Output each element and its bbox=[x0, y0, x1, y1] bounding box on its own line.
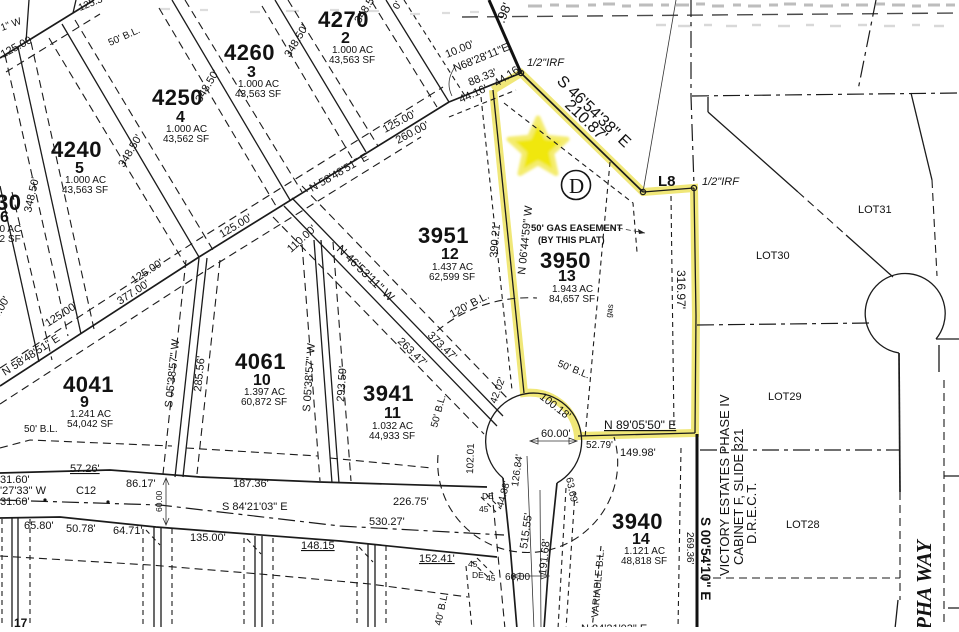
svg-text:84,657 SF: 84,657 SF bbox=[549, 294, 595, 305]
svg-text:4270: 4270 bbox=[318, 7, 369, 32]
svg-text:4240: 4240 bbox=[51, 137, 102, 162]
svg-text:50' B.L.: 50' B.L. bbox=[24, 424, 58, 435]
svg-text:50' GAS EASEMENT: 50' GAS EASEMENT bbox=[531, 223, 623, 234]
svg-text:L8: L8 bbox=[658, 173, 676, 190]
svg-text:LOT31: LOT31 bbox=[858, 204, 892, 216]
svg-text:152.41': 152.41' bbox=[419, 553, 455, 565]
svg-text:60.00: 60.00 bbox=[154, 490, 164, 512]
svg-text:LOT29: LOT29 bbox=[768, 391, 802, 403]
svg-text:187.36': 187.36' bbox=[233, 478, 269, 490]
svg-text:316.97': 316.97' bbox=[674, 270, 688, 309]
svg-text:1/2"IRF: 1/2"IRF bbox=[702, 176, 740, 188]
svg-text:31.60': 31.60' bbox=[0, 496, 30, 508]
svg-text:64.71': 64.71' bbox=[113, 525, 143, 537]
svg-text:4250: 4250 bbox=[152, 85, 203, 110]
svg-text:LOT30: LOT30 bbox=[756, 250, 790, 262]
svg-text:54,042 SF: 54,042 SF bbox=[67, 419, 113, 430]
svg-text:43,563 SF: 43,563 SF bbox=[235, 89, 281, 100]
svg-text:DE: DE bbox=[472, 570, 484, 580]
svg-text:62 SF: 62 SF bbox=[0, 234, 21, 245]
svg-text:293.59': 293.59' bbox=[335, 366, 349, 402]
svg-text:45: 45 bbox=[486, 573, 496, 583]
svg-text:1/2"IRF: 1/2"IRF bbox=[527, 57, 565, 69]
svg-text:45: 45 bbox=[468, 559, 478, 569]
svg-text:65.80': 65.80' bbox=[24, 520, 54, 532]
svg-text:VICTORY ESTATES PHASE IV: VICTORY ESTATES PHASE IV bbox=[717, 394, 732, 576]
svg-text:148.15: 148.15 bbox=[301, 540, 335, 552]
svg-text:D: D bbox=[569, 174, 584, 198]
svg-text:43,563 SF: 43,563 SF bbox=[329, 55, 375, 66]
svg-text:4260: 4260 bbox=[224, 40, 275, 65]
svg-text:4061: 4061 bbox=[235, 349, 286, 374]
svg-text:60,00: 60,00 bbox=[505, 572, 530, 583]
svg-text:60.00': 60.00' bbox=[541, 428, 571, 440]
svg-text:45: 45 bbox=[479, 504, 489, 514]
svg-text:135.00': 135.00' bbox=[190, 532, 226, 544]
svg-text:PHA WAY: PHA WAY bbox=[912, 538, 936, 627]
svg-text:C12: C12 bbox=[76, 485, 96, 497]
svg-text:226.75': 226.75' bbox=[393, 496, 429, 508]
svg-text:3941: 3941 bbox=[363, 381, 414, 406]
svg-text:52.79': 52.79' bbox=[586, 440, 613, 451]
svg-text:S 00'54'10" E: S 00'54'10" E bbox=[698, 517, 713, 600]
svg-text:149.98': 149.98' bbox=[620, 447, 656, 459]
svg-text:11: 11 bbox=[384, 405, 401, 422]
svg-text:13: 13 bbox=[558, 268, 576, 285]
svg-text:3951: 3951 bbox=[418, 223, 469, 248]
svg-text:43,562 SF: 43,562 SF bbox=[163, 134, 209, 145]
svg-text:44,933 SF: 44,933 SF bbox=[369, 431, 415, 442]
svg-text:17: 17 bbox=[14, 616, 28, 627]
svg-text:57.26': 57.26' bbox=[70, 463, 100, 475]
svg-text:S 84'21'03" E: S 84'21'03" E bbox=[222, 501, 288, 513]
svg-text:N 89'05'50" E: N 89'05'50" E bbox=[604, 418, 676, 432]
svg-text:86.17': 86.17' bbox=[126, 478, 156, 490]
svg-text:269.36': 269.36' bbox=[684, 532, 695, 565]
svg-text:DE: DE bbox=[482, 491, 494, 501]
svg-text:60,872 SF: 60,872 SF bbox=[241, 397, 287, 408]
svg-text:LOT28: LOT28 bbox=[786, 519, 820, 531]
svg-text:43,563 SF: 43,563 SF bbox=[62, 185, 108, 196]
svg-text:N 84'21'03" E: N 84'21'03" E bbox=[581, 623, 647, 627]
svg-text:62,599 SF: 62,599 SF bbox=[429, 272, 475, 283]
svg-text:(BY THIS PLAT): (BY THIS PLAT) bbox=[538, 235, 605, 245]
svg-text:102.01: 102.01 bbox=[465, 443, 477, 474]
svg-text:12: 12 bbox=[441, 246, 459, 263]
svg-text:530.27': 530.27' bbox=[369, 516, 405, 528]
svg-text:D.R.E.C.T.: D.R.E.C.T. bbox=[744, 483, 759, 544]
svg-text:48,818 SF: 48,818 SF bbox=[621, 556, 667, 567]
svg-text:50.78': 50.78' bbox=[66, 523, 96, 535]
